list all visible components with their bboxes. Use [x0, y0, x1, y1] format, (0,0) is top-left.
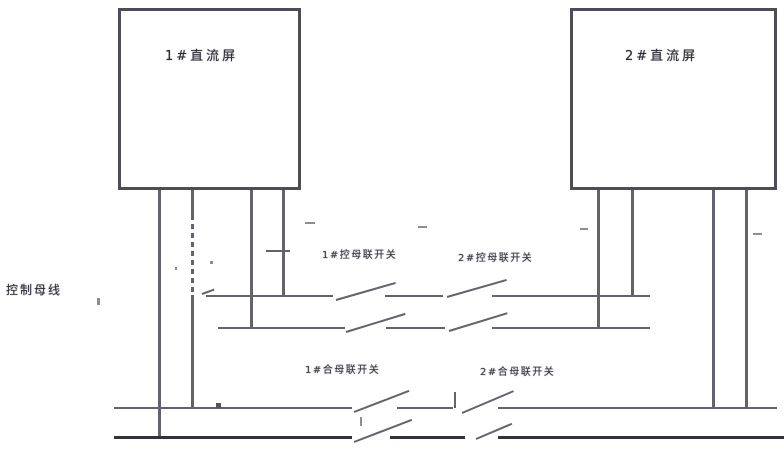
dc-panel-2-box: 2#直流屏	[570, 8, 777, 190]
ctrl-tie-switch-1-label: 1#控母联开关	[322, 250, 397, 262]
scan-speck	[97, 298, 100, 305]
scan-speck	[175, 267, 177, 270]
control-bus-end-tick	[202, 289, 215, 295]
panel1-ctrl-drop-wire-a	[250, 190, 253, 329]
panel2-feeder-inner-wire	[712, 190, 715, 409]
scan-speck	[753, 233, 762, 235]
panel1-feeder-outer-wire	[158, 190, 161, 438]
closing-bus-pole1-seg1	[114, 407, 352, 409]
control-bus-pole2-seg3	[492, 327, 650, 329]
blade-hinge-tick	[360, 417, 362, 426]
scan-speck	[305, 222, 315, 224]
closing-bus-pole2-seg3	[498, 436, 784, 439]
dc-panel-1-label: 1#直流屏	[165, 49, 238, 65]
control-bus-pole1-seg2	[385, 295, 443, 297]
wiring-diagram: 1#直流屏 2#直流屏 控制母线 1#控母联开关 2#控母联开关 1#合母联开关…	[0, 0, 784, 454]
close-tie-switch-1-blade-pole2	[354, 419, 413, 443]
panel1-drop-switch-tick	[266, 250, 290, 252]
control-bus-pole1-seg1	[206, 295, 333, 297]
dc-panel-1-box: 1#直流屏	[118, 8, 301, 190]
panel2-feeder-outer-wire	[745, 190, 748, 409]
close-tie-switch-2-blade-pole1	[462, 390, 514, 414]
close-tie-switch-2-label: 2#合母联开关	[480, 367, 555, 379]
panel2-ctrl-drop-wire-b	[631, 190, 634, 296]
panel1-ctrl-drop-wire-b	[282, 190, 285, 296]
closing-bus-pole1-seg3	[498, 407, 777, 409]
wire-scan-breaks	[191, 215, 194, 295]
ctrl-tie-switch-1-blade-pole1	[336, 282, 396, 301]
control-bus-pole2-seg2	[386, 327, 445, 329]
panel2-ctrl-drop-wire-a	[597, 190, 600, 329]
close-tie-switch-1-blade-pole1	[354, 390, 410, 413]
ctrl-tie-switch-2-label: 2#控母联开关	[458, 253, 533, 265]
control-bus-label: 控制母线	[6, 283, 62, 297]
closing-bus-pole2-seg2	[390, 436, 465, 439]
close-tie-switch-2-contact-tick	[454, 392, 456, 408]
control-bus-pole1-seg3	[492, 295, 650, 297]
scan-speck	[210, 261, 213, 264]
scan-speck	[216, 403, 221, 408]
ctrl-tie-switch-1-blade-pole2	[346, 313, 406, 333]
scan-speck	[418, 226, 427, 228]
close-tie-switch-1-label: 1#合母联开关	[305, 365, 380, 377]
control-bus-pole2-seg1	[218, 327, 345, 329]
dc-panel-2-label: 2#直流屏	[625, 49, 698, 65]
closing-bus-pole2-seg1	[114, 436, 352, 439]
closing-bus-pole1-seg2	[397, 407, 453, 409]
scan-speck	[580, 228, 588, 230]
